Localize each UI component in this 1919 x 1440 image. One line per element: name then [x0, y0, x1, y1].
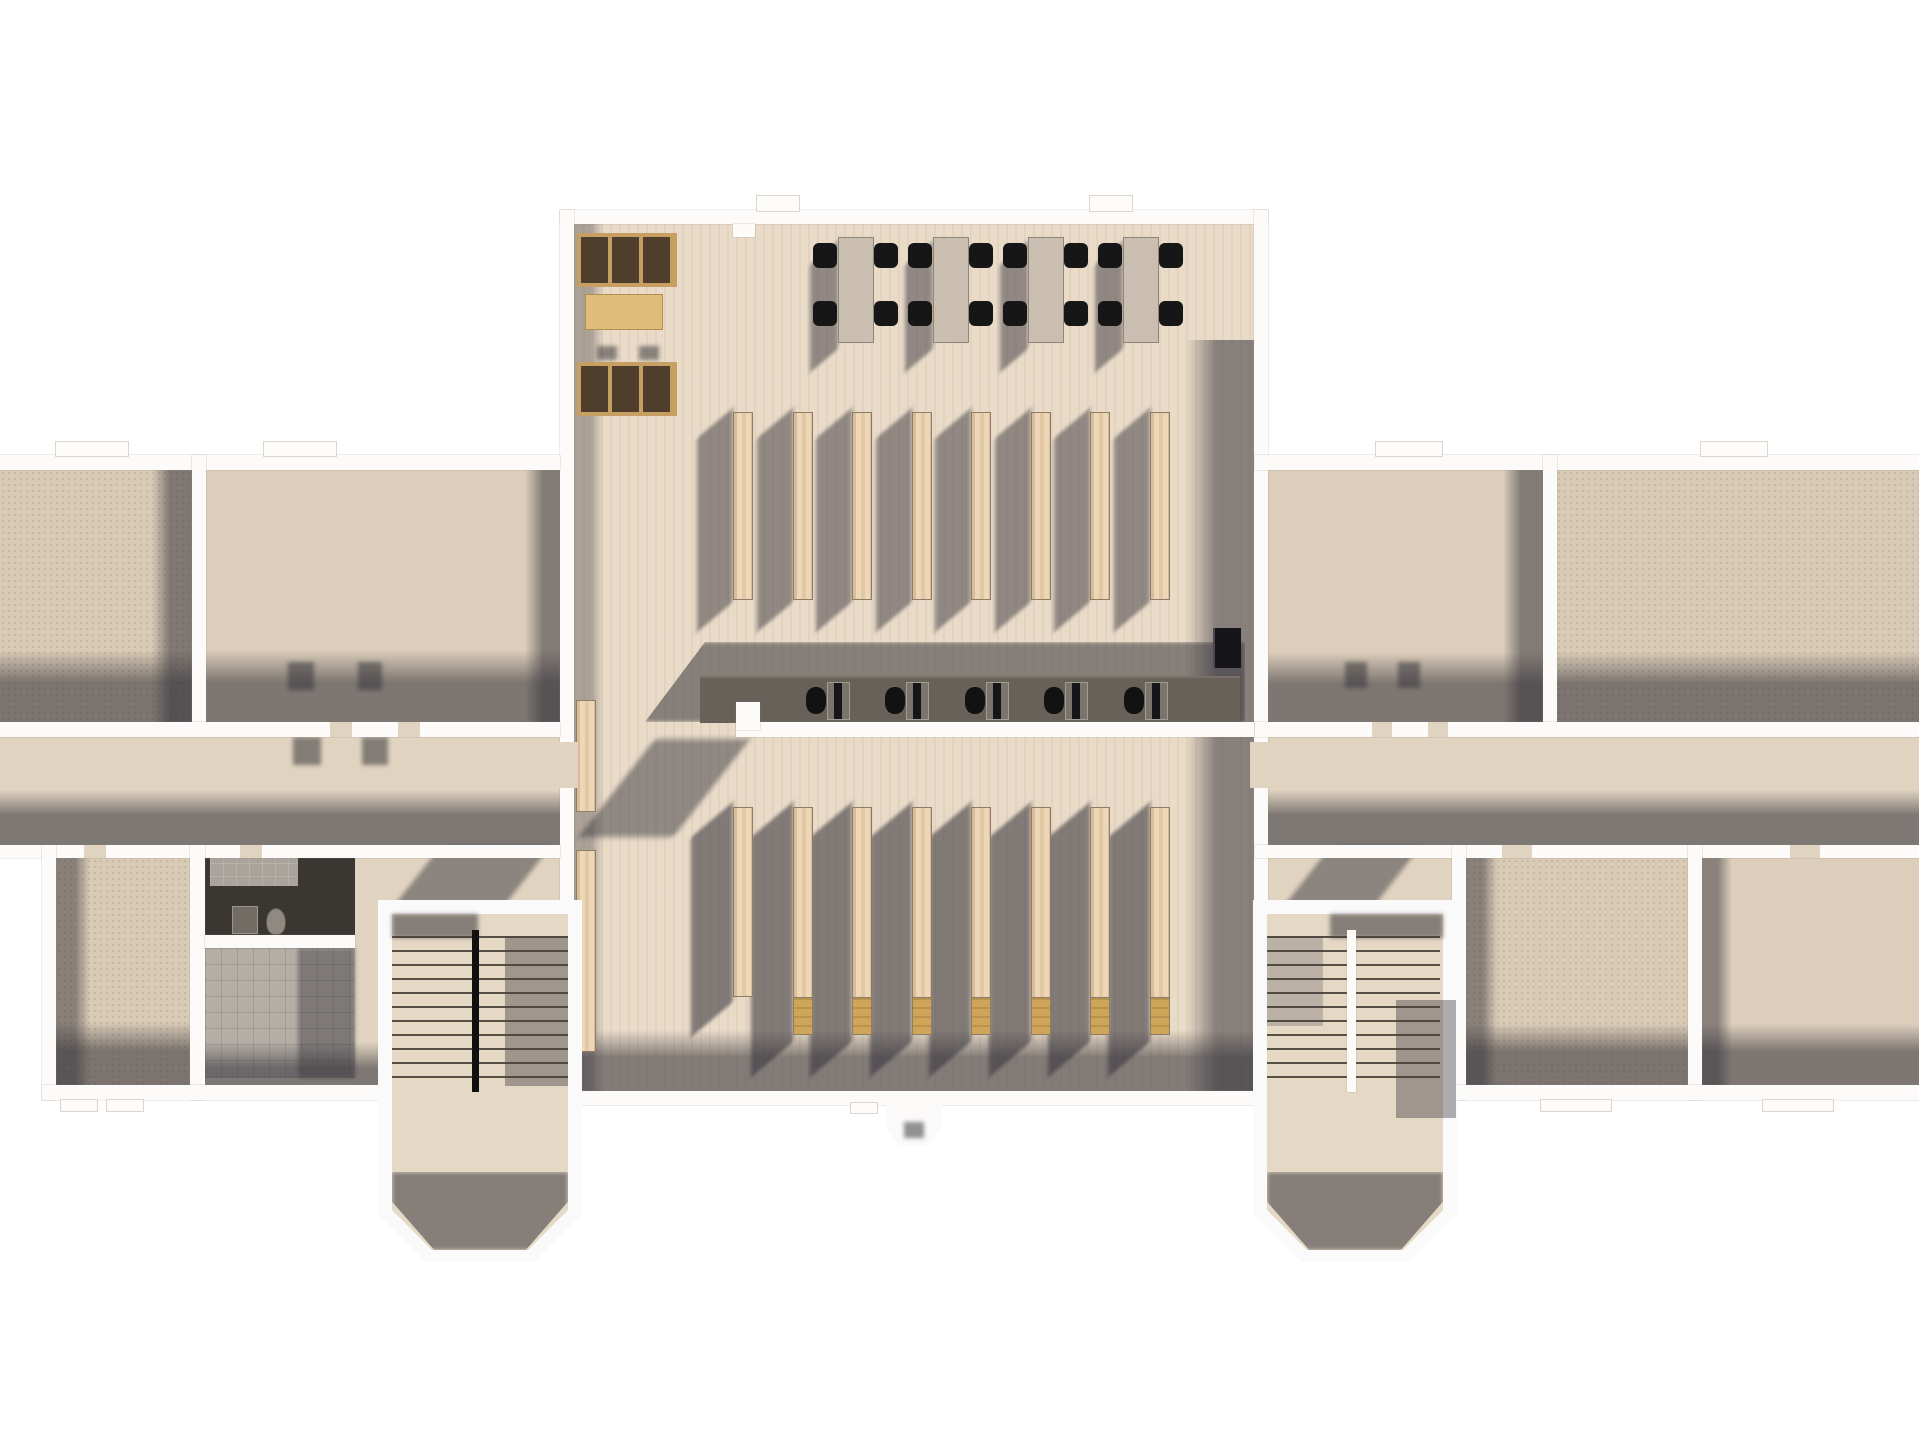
chair [1098, 243, 1122, 268]
computer-station [806, 682, 852, 720]
study-table [933, 237, 969, 343]
window-bump [1089, 195, 1133, 212]
shelf-end-cap [852, 997, 872, 1035]
left-stair-flight-up [392, 936, 472, 1088]
chair [1159, 301, 1183, 326]
chair [908, 243, 932, 268]
entrance-door-recess [850, 1102, 878, 1114]
window-recess [733, 224, 755, 237]
door-shadow-nub [1345, 662, 1367, 688]
right-wing-top-wall [1255, 455, 1919, 470]
study-table [1028, 237, 1064, 343]
shelf-end-cap [1031, 997, 1051, 1035]
chair [969, 243, 993, 268]
left-stair-flight-down [479, 936, 568, 1088]
study-table [838, 237, 874, 343]
right-stair-flight-down [1356, 936, 1440, 1088]
computer-station [885, 682, 931, 720]
shelf-end-cap [793, 997, 813, 1035]
chair [1098, 301, 1122, 326]
bookshelf [793, 412, 813, 600]
door-opening [1428, 722, 1448, 737]
bookshelf [733, 807, 753, 997]
counter-pillar [736, 702, 760, 730]
shelf-shadow [876, 408, 912, 632]
floor-plan-render [0, 0, 1919, 1440]
computer-station [965, 682, 1011, 720]
door-shadow-nub [293, 737, 321, 765]
left-wing-top-wall [0, 455, 560, 470]
right-wing-partition [1543, 455, 1557, 722]
shelf-shadow [870, 802, 912, 1077]
window-bump [1375, 441, 1443, 457]
shelf-shadow [1114, 408, 1150, 632]
left-corridor-top-wall [0, 722, 560, 737]
wc-divider-wall [205, 935, 355, 948]
chair [874, 243, 898, 268]
entrance-door-shadow [904, 1122, 924, 1138]
window-bump [756, 195, 800, 212]
sofa-back-shadow [639, 346, 659, 360]
shelf-shadow [697, 408, 733, 632]
bookshelf [1031, 412, 1051, 600]
door-opening [330, 722, 352, 737]
computer-station [1044, 682, 1090, 720]
chair [1159, 243, 1183, 268]
sofa [577, 233, 677, 287]
right-corridor-top-wall [1255, 722, 1919, 737]
right-room-a-shadow-right [1503, 470, 1543, 722]
bookshelf [733, 412, 753, 600]
window-bump [263, 441, 337, 457]
door-opening [1372, 722, 1392, 737]
corridor-door-gap [1250, 742, 1272, 788]
chair [813, 243, 837, 268]
bookshelf [1150, 412, 1170, 600]
shelf-end-cap [912, 997, 932, 1035]
shelf-shadow [1048, 802, 1090, 1077]
window-bump [106, 1099, 144, 1112]
door-opening [398, 722, 420, 737]
shower-room-shadow [298, 948, 355, 1078]
right-corridor-shadow [1255, 790, 1919, 845]
right-lower-room-a-shadow [1465, 1024, 1688, 1085]
corridor-door-gap [556, 742, 578, 788]
shelf-shadow [989, 802, 1031, 1077]
bookshelf [852, 412, 872, 600]
left-stair-top-shadow [392, 914, 478, 938]
shelf-shadow [691, 802, 733, 1037]
lounge-table [585, 294, 663, 330]
right-lower-wall-b [1688, 845, 1702, 1100]
shelf-shadow [995, 408, 1031, 632]
left-corridor-shadow [0, 790, 560, 845]
chair [813, 301, 837, 326]
window-bump [1540, 1099, 1612, 1112]
hall-top-wall [560, 210, 1268, 224]
left-lower-room-shadow-left [56, 858, 90, 1085]
chair [874, 301, 898, 326]
door-opening [240, 845, 262, 858]
chair [1064, 243, 1088, 268]
chair [969, 301, 993, 326]
door-shadow-nub [1398, 662, 1420, 688]
right-wing-bottom-wall [1452, 1085, 1919, 1100]
shelf-shadow [935, 408, 971, 632]
window-bump [1762, 1099, 1834, 1112]
computer-station [1124, 682, 1170, 720]
door-opening [84, 845, 106, 858]
shelf-shadow [1054, 408, 1090, 632]
door-opening [1790, 845, 1820, 858]
hall-bottom-wall-shadow [574, 1030, 1254, 1091]
door-shadow-nub [358, 662, 382, 690]
sofa-back-shadow [597, 346, 617, 360]
hall-mid-wall [736, 722, 1254, 737]
shelf-end-cap [1090, 997, 1110, 1035]
window-bump [1700, 441, 1768, 457]
shelf-end-cap [1150, 997, 1170, 1035]
toilet [266, 908, 286, 935]
shelf-end-cap [971, 997, 991, 1035]
left-wing-partition [192, 455, 206, 722]
right-room-b-shadow [1556, 652, 1919, 722]
window-bump [60, 1099, 98, 1112]
left-lower-outer-wall [42, 845, 56, 1100]
bookshelf [1090, 412, 1110, 600]
shelf-shadow [810, 802, 852, 1077]
shelf-shadow [929, 802, 971, 1077]
door-opening [1502, 845, 1532, 858]
window-bump [55, 441, 129, 457]
left-room-b-shadow-right [525, 470, 565, 722]
chair [908, 301, 932, 326]
sofa [577, 362, 677, 416]
wall-equipment [1213, 628, 1241, 668]
chair [1003, 243, 1027, 268]
bookshelf [971, 412, 991, 600]
shelf-shadow [816, 408, 852, 632]
right-lower-room-b-shadow [1700, 1024, 1919, 1085]
left-room-a-shadow-right [152, 470, 192, 722]
shelf-shadow [757, 408, 793, 632]
door-shadow-nub [288, 662, 314, 690]
chair [1064, 301, 1088, 326]
bookshelf [912, 412, 932, 600]
stair-railing [472, 930, 479, 1092]
wall-shelf [576, 700, 596, 812]
sink [232, 906, 258, 934]
stair-divider-wall [1347, 930, 1356, 1092]
study-table [1123, 237, 1159, 343]
shelf-shadow [1108, 802, 1150, 1077]
shelf-shadow [751, 802, 793, 1077]
left-room-b-shadow [205, 650, 565, 722]
right-stair-flight-up [1267, 936, 1347, 1088]
chair [1003, 301, 1027, 326]
wc-left-wall [190, 845, 205, 1100]
door-shadow-nub [362, 737, 388, 765]
